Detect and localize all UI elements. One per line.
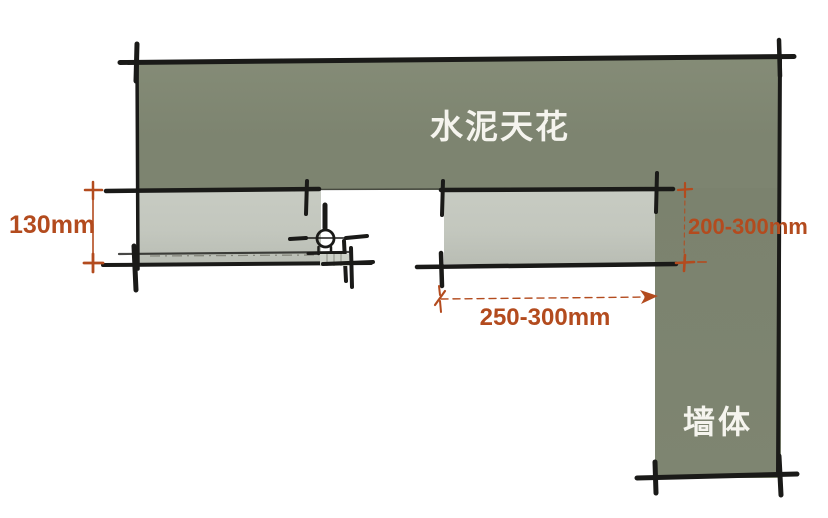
dim-250-300mm-label: 250-300mm [478, 305, 612, 331]
ceiling-label: 水泥天花 [424, 109, 576, 145]
wall-label: 墙体 [676, 405, 760, 440]
downlight-icon [290, 205, 373, 287]
dim-130mm-label: 130mm [9, 212, 95, 240]
band-centerline [150, 255, 316, 256]
wall-bottom-strokes [637, 456, 797, 495]
left-band-strokes [103, 181, 371, 290]
dim-200-300mm-label: 200-300mm [688, 215, 808, 239]
sketch-overlay [0, 0, 828, 518]
diagram-canvas: 水泥天花 墙体 130mm 200-300mm 250-300mm [0, 0, 828, 518]
right-band-strokes [417, 173, 676, 286]
dim-arrow-right [640, 290, 658, 304]
